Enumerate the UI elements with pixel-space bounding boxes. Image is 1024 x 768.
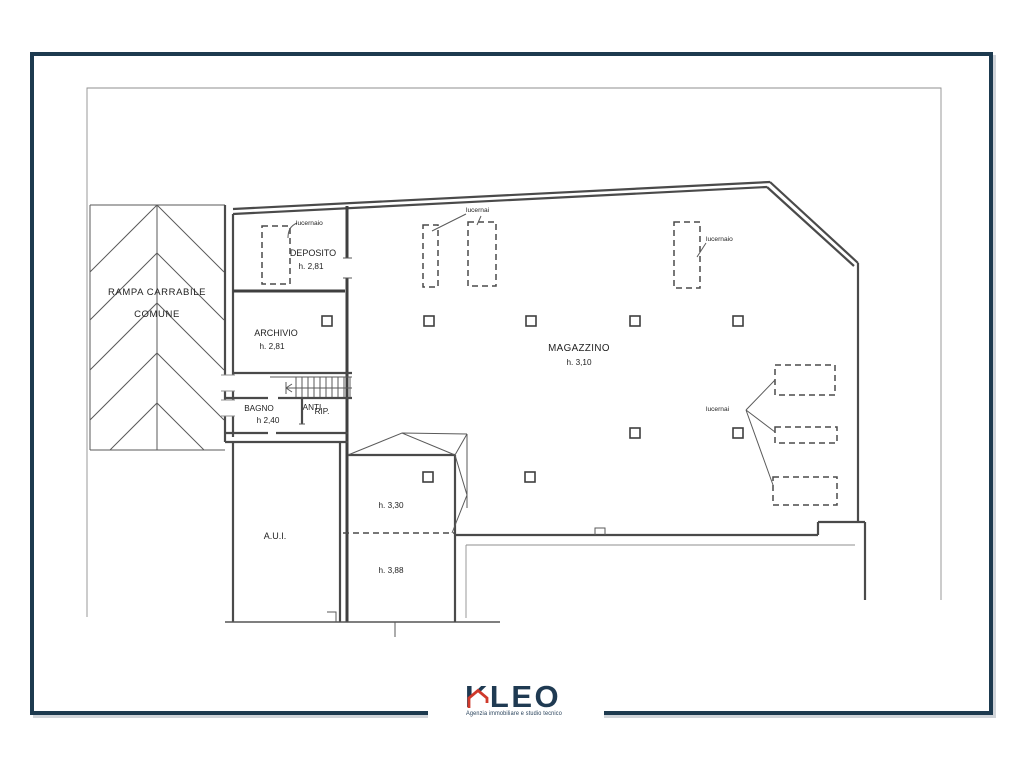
plan-sheet-border — [87, 88, 941, 617]
logo-tagline: Agenzia immobiliare e studio tecnico — [466, 710, 562, 717]
vano388-height: h. 3,88 — [378, 566, 403, 575]
building-outline — [221, 182, 865, 600]
archivio-height: h. 2,81 — [259, 342, 284, 351]
skylight-label-right: lucernaio — [706, 236, 733, 243]
skylight-label-deposito: lucernaio — [296, 220, 323, 227]
ramp-area: RAMPA CARRABILE COMUNE — [90, 205, 225, 470]
agency-logo: KLEO Agenzia immobiliare e studio tecnic… — [428, 672, 604, 724]
bagno-height: h 2,40 — [257, 416, 280, 425]
archivio-label: ARCHIVIO — [254, 328, 298, 338]
deposito-archivio-walls: DEPOSITO h. 2,81 ARCHIVIO h. 2,81 — [233, 206, 352, 622]
vano-330-388: h. 3,30 h. 3,88 — [343, 433, 467, 622]
magazzino-label: MAGAZZINO — [548, 343, 610, 354]
screenshot-root: RAMPA CARRABILE COMUNE — [0, 0, 1024, 768]
floor-plan-drawing: RAMPA CARRABILE COMUNE — [0, 0, 1024, 768]
pillar-squares — [322, 316, 743, 482]
deposito-label: DEPOSITO — [290, 248, 336, 258]
skylight-label-top: lucernai — [466, 207, 490, 214]
bagno-anti-rip-walls: BAGNO ANTI h 2,40 RIP. — [225, 398, 352, 433]
ramp-label-line1: RAMPA CARRABILE — [108, 287, 206, 298]
aui-label: A.U.I. — [264, 531, 287, 541]
skylight-label-cluster: lucernai — [706, 406, 730, 413]
rip-label: RIP. — [315, 407, 330, 416]
deposito-height: h. 2,81 — [298, 262, 323, 271]
staircase — [270, 377, 352, 398]
magazzino-labels: MAGAZZINO h. 3,10 — [548, 343, 610, 367]
aui-room: A.U.I. — [225, 442, 500, 637]
ramp-label-line2: COMUNE — [134, 309, 180, 320]
vano330-height: h. 3,30 — [378, 501, 403, 510]
magazzino-height: h. 3,10 — [566, 358, 591, 367]
bagno-label: BAGNO — [244, 404, 274, 413]
